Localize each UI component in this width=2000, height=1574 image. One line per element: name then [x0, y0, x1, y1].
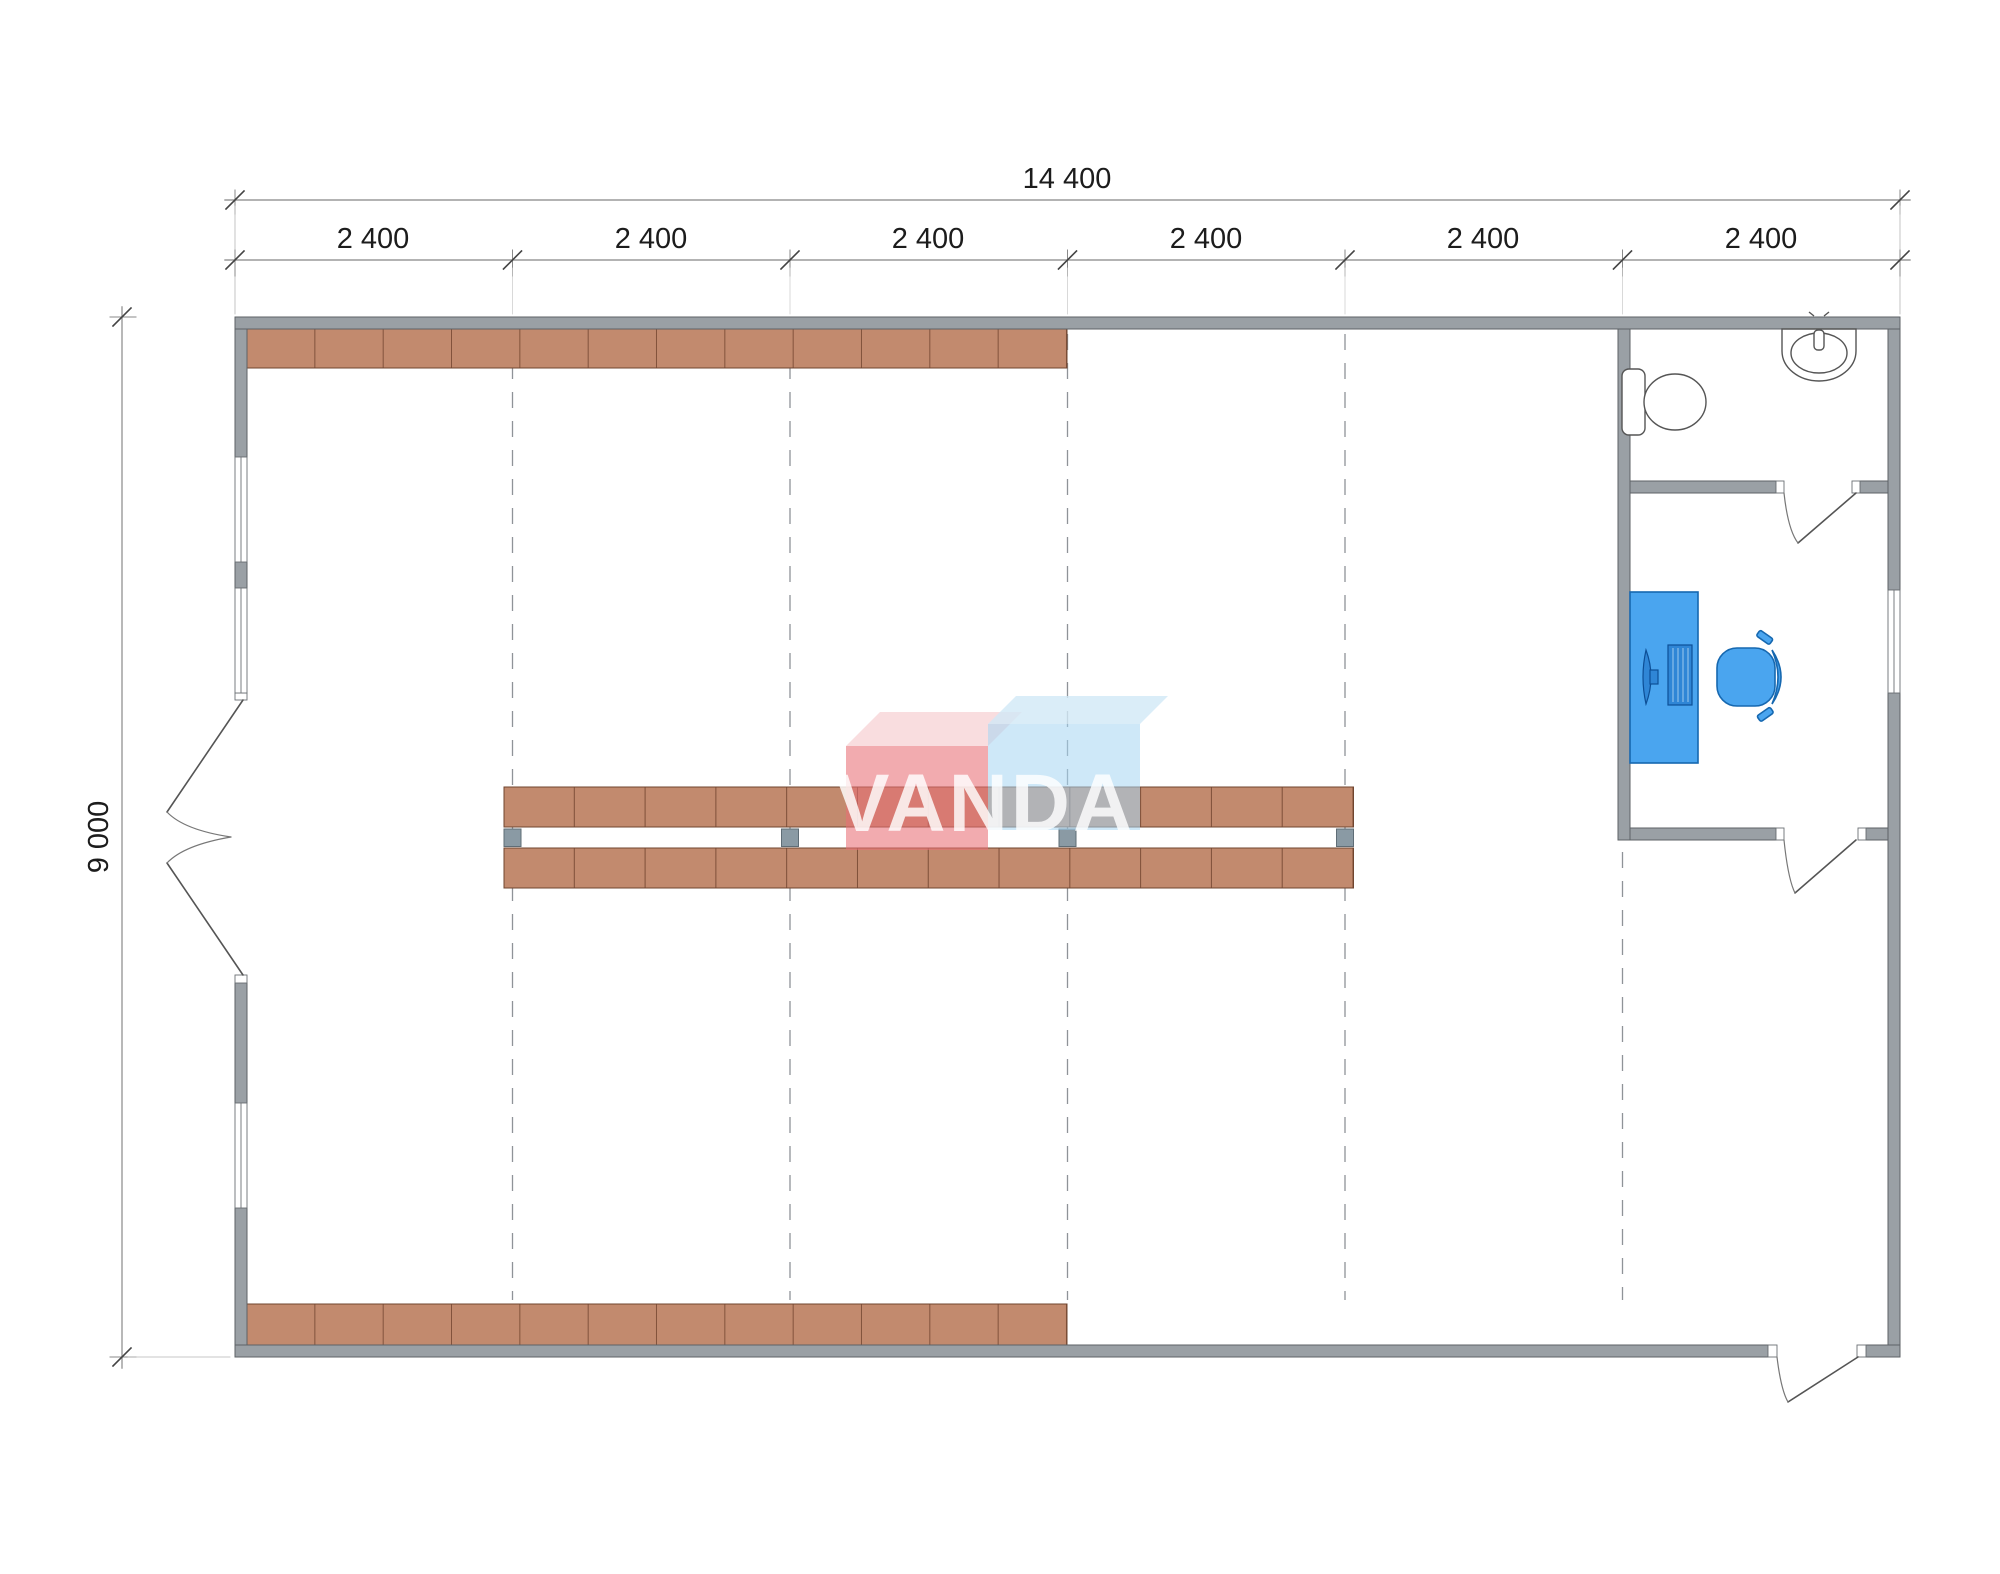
floor-plan-canvas: 14 400 2 — [0, 0, 2000, 1574]
bay-label-2: 2 400 — [615, 223, 688, 255]
office-door — [1784, 840, 1856, 893]
left-wall-window-pier — [235, 562, 247, 588]
bottom-wall-shelving-run — [247, 1304, 1067, 1345]
bay-dimensions: 2 400 2 400 2 400 2 400 2 400 2 400 — [225, 223, 1910, 314]
overall-height-dimension: 9 000 — [83, 307, 230, 1368]
bay-label-1: 2 400 — [337, 223, 410, 255]
bathroom-partition-wall — [1630, 481, 1776, 493]
top-wall-shelving-run — [247, 327, 1067, 368]
right-wall-lower — [1888, 693, 1900, 1345]
right-wall-upper — [1888, 329, 1900, 590]
office-chair — [1717, 630, 1781, 722]
window-left-3 — [235, 1103, 247, 1208]
chair-armrest-bottom — [1757, 707, 1774, 722]
office-furniture — [1630, 592, 1781, 763]
left-wall-lower — [235, 1208, 247, 1345]
chair-seat — [1717, 648, 1775, 706]
toilet — [1622, 369, 1706, 435]
bathroom-fixtures — [1622, 312, 1856, 435]
bottom-exterior-wall — [235, 1345, 1768, 1357]
window-left-1 — [235, 457, 247, 562]
window-left-2 — [235, 588, 247, 693]
bay-label-4: 2 400 — [1170, 223, 1243, 255]
center-shelving-row-lower — [504, 848, 1354, 888]
floor-plan-drawing: 14 400 2 — [0, 0, 2000, 1574]
bathroom-partition-stub — [1860, 481, 1888, 493]
bottom-exterior-wall-right-stub — [1866, 1345, 1900, 1357]
bay-label-5: 2 400 — [1447, 223, 1520, 255]
window-right-office — [1888, 590, 1900, 693]
chair-armrest-top — [1756, 630, 1773, 645]
watermark-text: VANDA — [835, 758, 1135, 849]
left-wall-upper — [235, 329, 247, 457]
office-partition-wall — [1630, 828, 1776, 840]
doors — [167, 493, 1858, 1402]
watermark-blue-box-top — [988, 696, 1168, 724]
rear-exit-door — [1777, 1357, 1858, 1402]
overall-width-label: 14 400 — [1023, 163, 1112, 195]
bay-label-6: 2 400 — [1725, 223, 1798, 255]
left-wall-mid — [235, 983, 247, 1103]
bathroom-door — [1784, 493, 1856, 543]
bay-label-3: 2 400 — [892, 223, 965, 255]
keyboard — [1668, 645, 1692, 705]
vanda-watermark: VANDA — [835, 696, 1168, 850]
double-entry-door — [167, 700, 243, 975]
top-exterior-wall — [235, 317, 1900, 329]
shelving — [247, 327, 1354, 1345]
office-partition-stub — [1866, 828, 1888, 840]
overall-height-label: 9 000 — [83, 801, 115, 874]
